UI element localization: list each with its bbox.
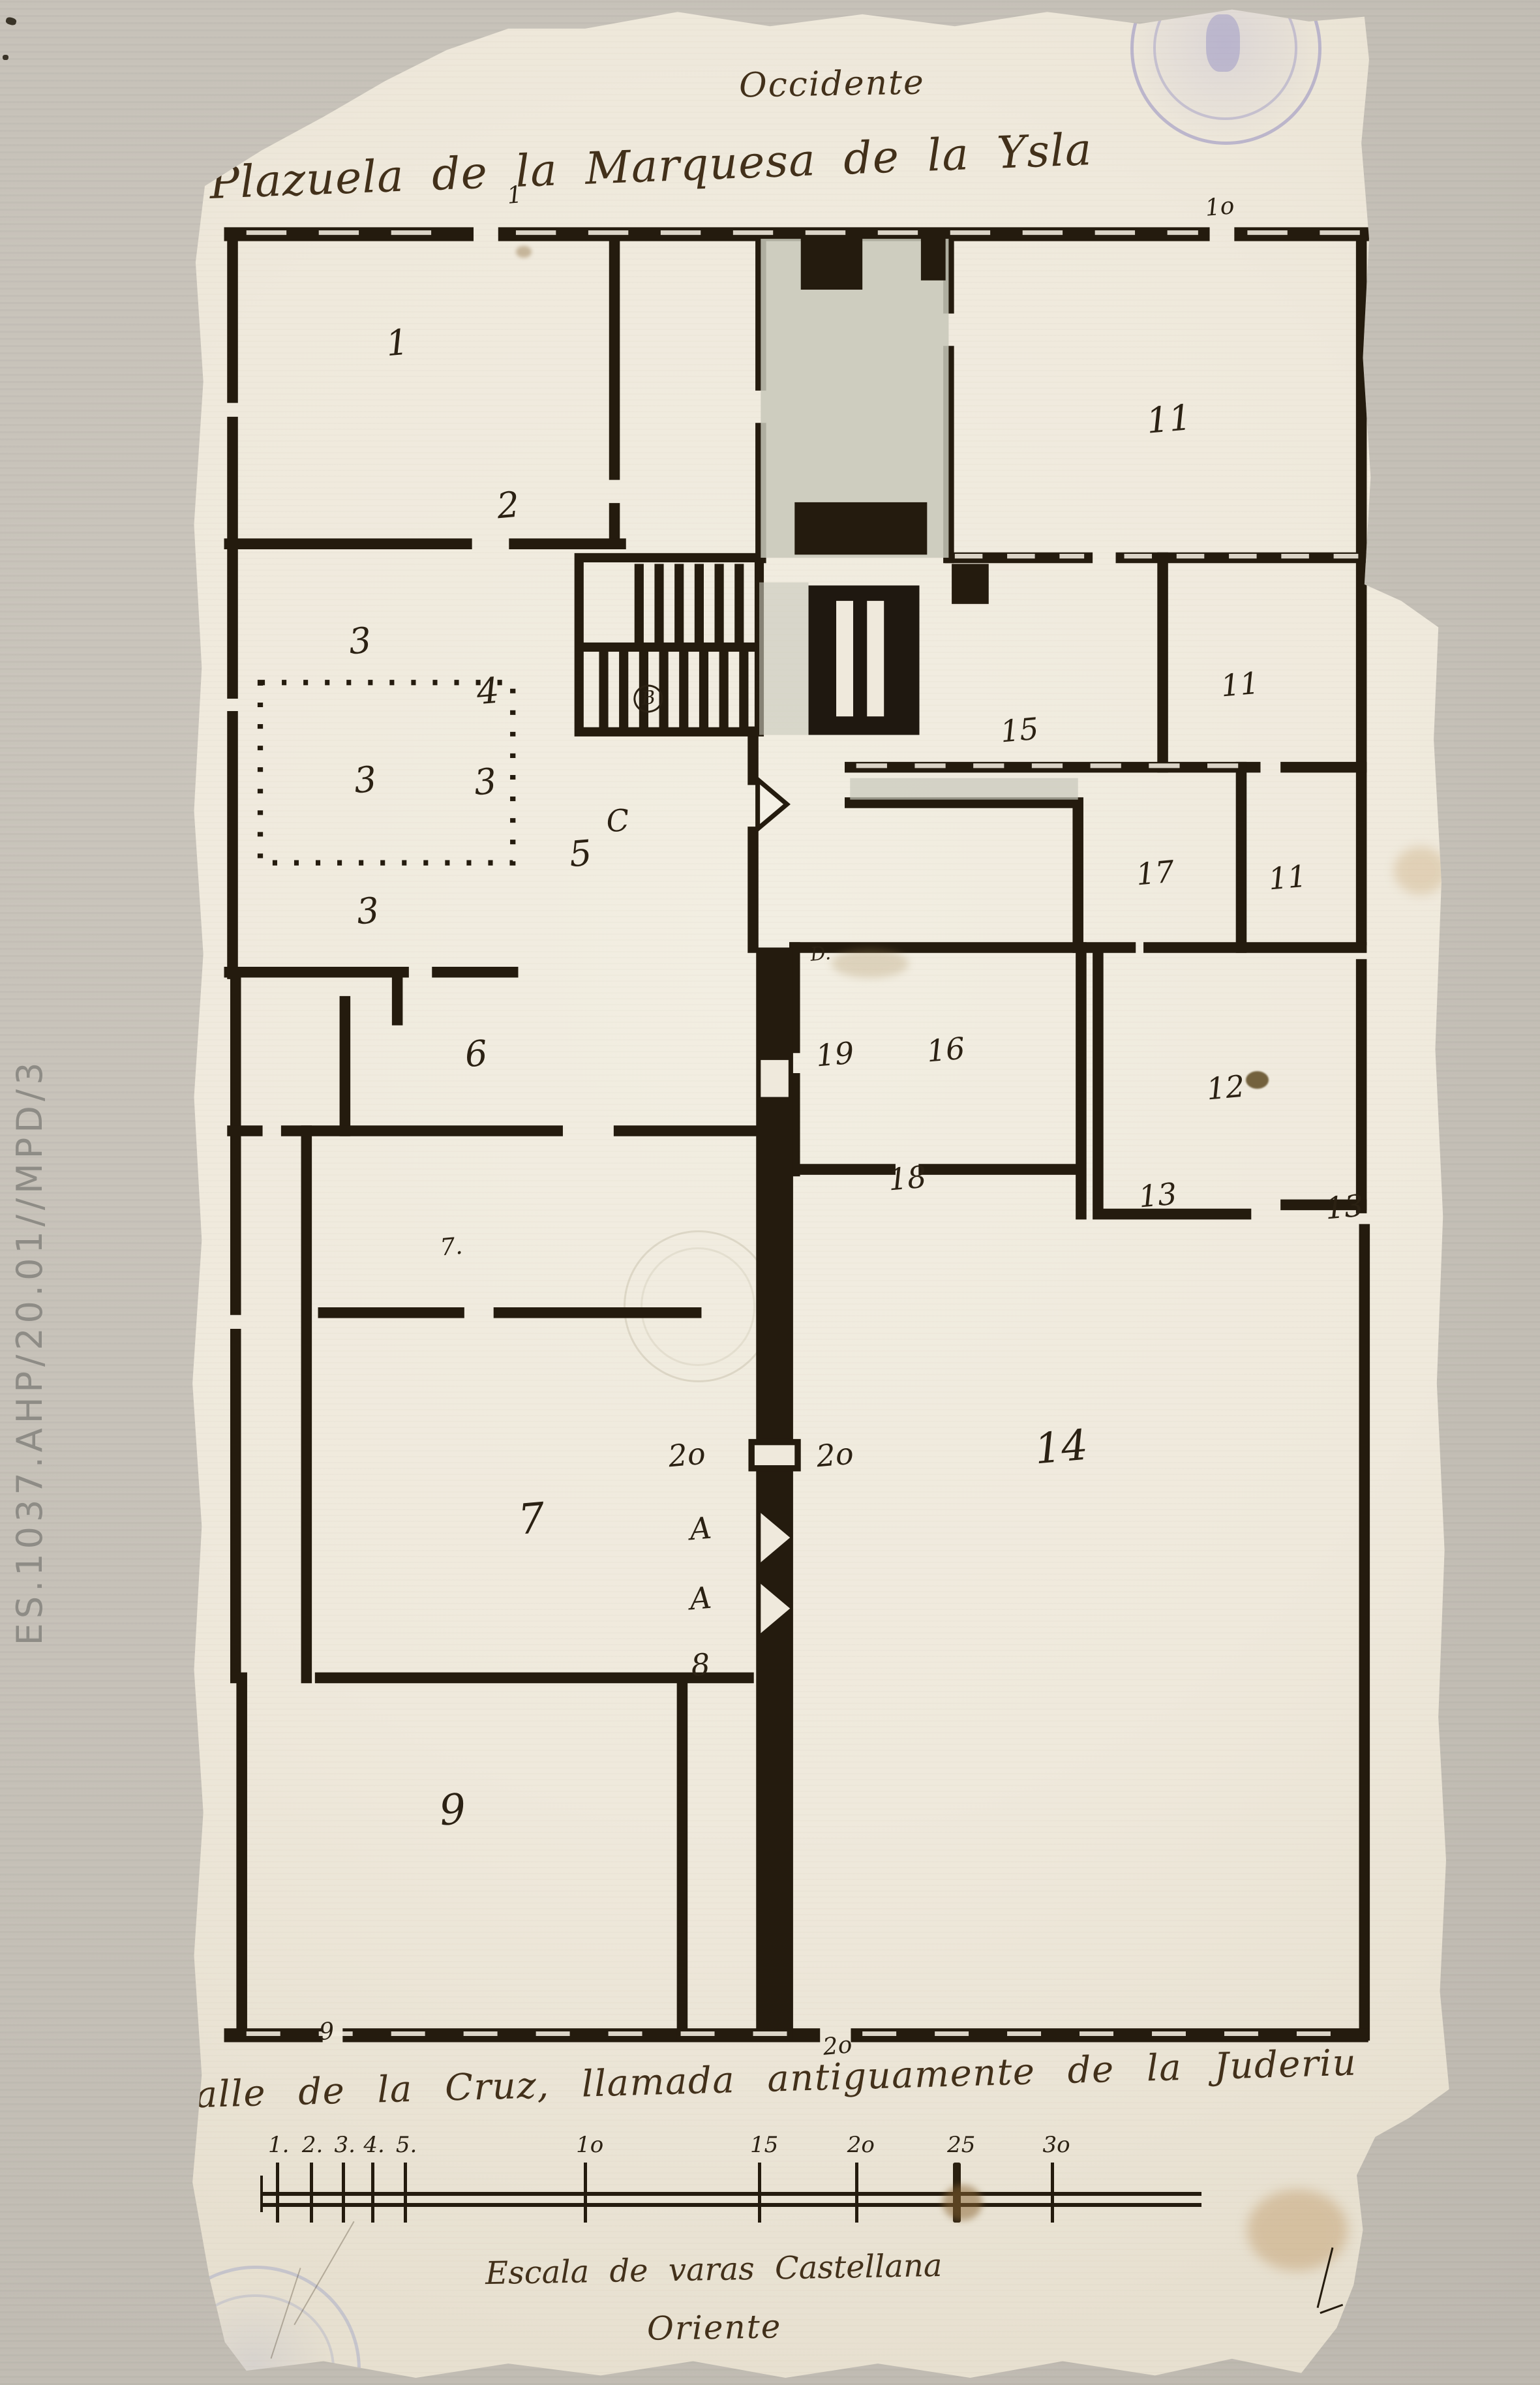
foxing-stain [1394, 847, 1448, 894]
plan-label-1o: 1o [1204, 194, 1235, 220]
edge-speck [3, 55, 8, 60]
scale-tick-label: 1o [576, 2132, 603, 2158]
plan-label-1: 1 [385, 325, 410, 362]
foxing-stain [1247, 2189, 1347, 2270]
plan-label-5: 5 [568, 835, 594, 872]
scale-tick-label: 3o [1043, 2132, 1070, 2158]
plan-label-3: 3 [352, 761, 378, 798]
foxing-stain [516, 246, 532, 258]
plan-label-A: A [689, 1513, 713, 1545]
plan-label-11: 11 [1267, 861, 1308, 894]
plan-label-19: 19 [814, 1037, 854, 1071]
archive-reference-watermark: ES.1037.AHP/20.01//MPD/3 [9, 739, 74, 1645]
scale-tick-mark [1051, 2163, 1054, 2223]
scanned-archival-plan: ES.1037.AHP/20.01//MPD/3 Occidente [0, 0, 1540, 2385]
scale-tick-mark [310, 2163, 313, 2223]
plan-label-11: 11 [1219, 668, 1260, 701]
ink-blot [1246, 1071, 1269, 1089]
plan-label-6: 6 [463, 1036, 489, 1073]
scale-tick-label: 5. [396, 2132, 417, 2158]
plan-label-A: A [689, 1582, 713, 1614]
scale-tick-label: 2o [847, 2132, 875, 2158]
plan-label-D: D. [809, 944, 832, 965]
scale-tick-mark [758, 2163, 761, 2223]
plan-label-13: 13 [1324, 1190, 1365, 1223]
plan-label-9: 9 [318, 2020, 335, 2044]
plan-label-4: 4 [476, 673, 501, 710]
plan-label-8: 8 [690, 1649, 712, 1680]
plan-label-14: 14 [1033, 1425, 1089, 1471]
scale-bar-line [262, 2192, 1201, 2196]
scale-tick-mark [404, 2163, 407, 2223]
plan-paper-sheet: Occidente Plazuela de la Marquesa de la … [0, 0, 1540, 2385]
scale-tick-mark [855, 2163, 858, 2223]
plan-label-3: 3 [472, 764, 498, 801]
plan-label-7: 7. [439, 1235, 463, 1260]
plan-label-12: 12 [1205, 1071, 1246, 1104]
scale-tick-mark [584, 2163, 587, 2223]
scale-tick-label: 4. [363, 2132, 384, 2158]
plan-label-2o: 2o [823, 2033, 854, 2059]
scale-tick-label: 15 [750, 2132, 778, 2158]
scale-bar-line [262, 2203, 1201, 2207]
plan-label-3: 3 [355, 892, 381, 930]
scale-tick-mark [371, 2163, 374, 2223]
plan-label-C: C [605, 804, 630, 836]
edge-speck [5, 17, 17, 27]
scale-tick-mark [276, 2163, 279, 2223]
floor-plan-drawing [0, 0, 1540, 2385]
plan-label-1: 1 [506, 183, 523, 208]
plan-label-2o: 2o [815, 1438, 854, 1472]
plan-label-16: 16 [925, 1033, 965, 1066]
scale-bar-end-tick [260, 2176, 263, 2212]
scale-tick-label: 2. [302, 2132, 323, 2158]
plan-label-11: 11 [1145, 401, 1192, 440]
scale-tick-label: 25 [947, 2132, 975, 2158]
plan-label-7: 7 [516, 1497, 546, 1541]
plan-label-2o: 2o [667, 1438, 707, 1472]
archive-backing-board: ES.1037.AHP/20.01//MPD/3 Occidente [0, 0, 1540, 2385]
plan-label-2: 2 [496, 487, 521, 524]
plan-label-18: 18 [886, 1162, 927, 1195]
plan-label-15: 15 [999, 713, 1040, 746]
foxing-stain [943, 2185, 982, 2221]
scale-tick-label: 3. [334, 2132, 355, 2158]
scale-bar: 1.2.3.4.5.1o152o253o [262, 2151, 1201, 2232]
scale-tick-mark [342, 2163, 345, 2223]
foxing-stain [832, 949, 909, 978]
plan-label-3: 3 [348, 623, 373, 660]
plan-label-13: 13 [1138, 1178, 1178, 1211]
plan-label-17: 17 [1135, 857, 1175, 890]
scale-tick-label: 1. [268, 2132, 289, 2158]
plan-label-9: 9 [438, 1788, 468, 1832]
